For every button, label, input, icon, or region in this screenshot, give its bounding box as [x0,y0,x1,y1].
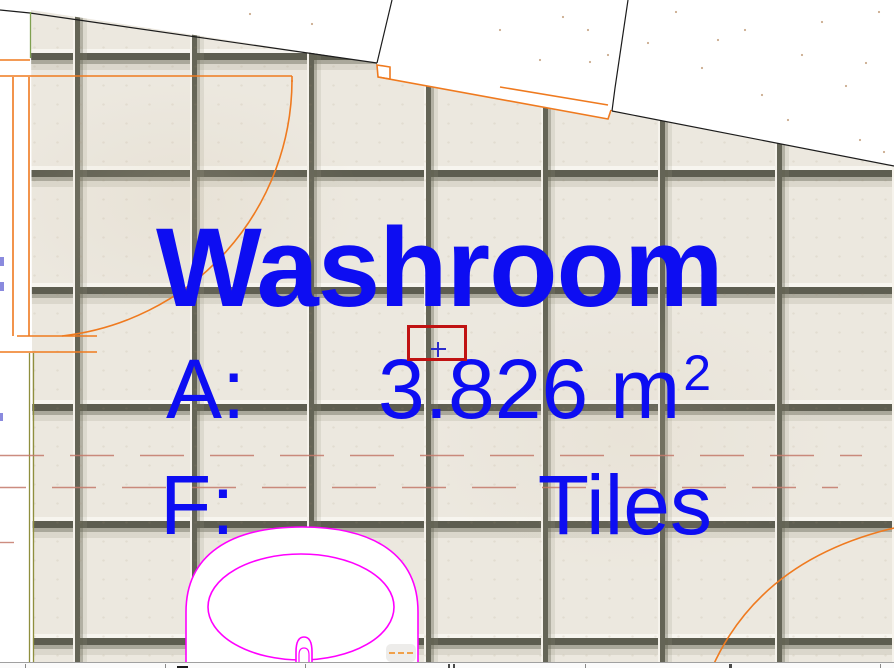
dashed-line-pill [386,644,416,662]
clipped-text-fragment [0,257,4,266]
crosshair-cursor [437,342,439,357]
clipped-text-fragment [729,664,732,668]
zone-name-label[interactable]: Washroom [156,212,756,324]
wall-contour-lines [0,0,894,166]
clipped-text-fragment [453,664,455,668]
clipped-text-fragment [0,282,4,291]
zone-area-label: A: [166,347,245,431]
wall-edge-lines [30,12,34,662]
ruler-tick [305,664,306,668]
door-right-swing-arc [712,528,894,668]
area-unit-exponent: 2 [683,345,711,401]
door-top-leaf [377,65,611,119]
ruler-tick [25,664,26,668]
zone-floor-label: F: [160,463,235,547]
ruler-tick [880,664,881,668]
clipped-text-fragment [448,664,450,668]
zone-floor-row[interactable]: F: Tiles [160,463,712,547]
drawing-viewport[interactable]: Washroom A: 3.826m2 F: Tiles [0,0,894,668]
bottom-edge-strip[interactable] [0,662,894,668]
ruler-tick [165,664,166,668]
ruler-tick [585,664,586,668]
orange-dash-icon [389,652,413,654]
zone-floor-value: Tiles [538,463,712,547]
texture-speckles [249,11,885,153]
clipped-text-fragment [0,413,3,421]
